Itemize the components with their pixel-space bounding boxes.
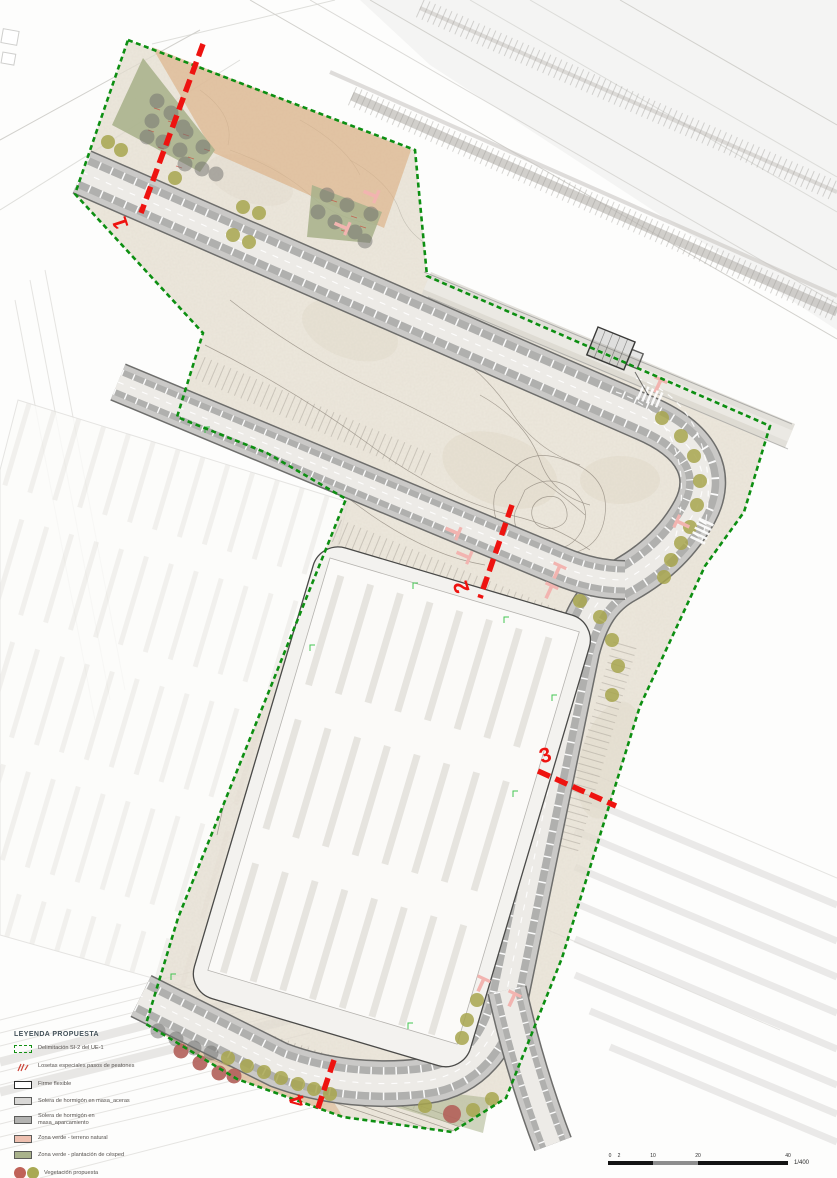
vegetation-olive-dot [27,1167,39,1178]
firme-flexible-swatch [14,1081,32,1089]
vegetation-red-dot [14,1167,26,1178]
scale-tick-40: 40 [785,1153,791,1159]
scale-tick-20: 20 [695,1153,701,1159]
boundary-swatch [14,1045,32,1053]
scale-tick-10: 10 [650,1153,656,1159]
solera-aceras-swatch [14,1097,32,1105]
legend-item-label: Losetas especiales pasos de peatones [38,1063,138,1070]
legend-item-label: Zona verde - terreno natural [38,1135,138,1142]
scale-bar-graphic [608,1161,788,1165]
legend-item-label: Solera de hormigón en masa_aparcamiento [38,1113,138,1127]
legend: LEYENDA PROPUESTA Delimitación SI-2 del … [14,1031,174,1178]
legend-item-firme-flexible: Firme flexible [14,1080,174,1089]
scale-bar: 0 2 10 20 40 1/400 [608,1153,818,1173]
scale-ratio: 1/400 [794,1160,809,1166]
legend-item-cesped: Zona verde - plantación de césped [14,1151,174,1160]
legend-item-label: Vegetación propuesta [44,1170,144,1177]
solera-aparcamiento-swatch [14,1116,32,1124]
legend-item-delimitacion: Delimitación SI-2 del UE-1 [14,1044,174,1053]
crosswalk-tiles-icon [14,1061,32,1073]
legend-item-solera-aparcamiento: Solera de hormigón en masa_aparcamiento [14,1113,174,1127]
legend-item-vegetacion: Vegetación propuesta [14,1167,174,1178]
legend-item-terreno-natural: Zona verde - terreno natural [14,1134,174,1143]
vegetation-swatch [14,1167,40,1178]
site-plan-page: 1 2 3 4 LEYENDA PROPUESTA Delimitación S… [0,0,837,1178]
scale-tick-0: 0 [609,1153,612,1159]
scale-tick-2: 2 [618,1153,621,1159]
legend-item-label: Delimitación SI-2 del UE-1 [38,1045,138,1052]
legend-item-label: Firme flexible [38,1081,138,1088]
legend-item-label: Solera de hormigón en masa_aceras [38,1098,138,1105]
legend-title: LEYENDA PROPUESTA [14,1031,174,1038]
legend-item-label: Zona verde - plantación de césped [38,1152,138,1159]
cesped-swatch [14,1151,32,1159]
terreno-natural-swatch [14,1135,32,1143]
legend-item-solera-aceras: Solera de hormigón en masa_aceras [14,1097,174,1106]
legend-item-losetas: Losetas especiales pasos de peatones [14,1061,174,1073]
site-plan-canvas: 1 2 3 4 [0,0,837,1178]
